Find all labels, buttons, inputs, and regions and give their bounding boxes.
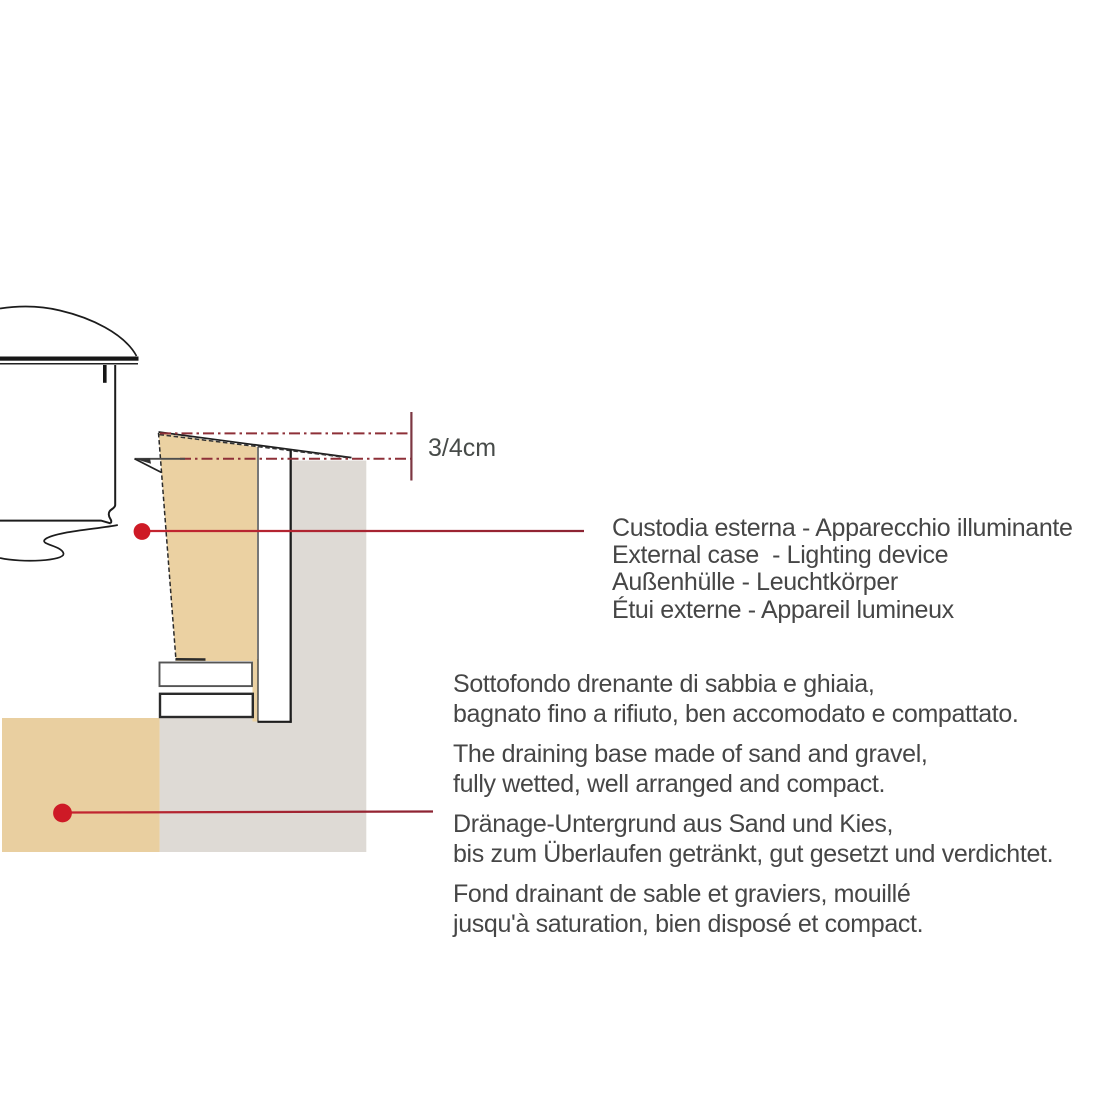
svg-text:3/4cm: 3/4cm [428, 434, 496, 462]
